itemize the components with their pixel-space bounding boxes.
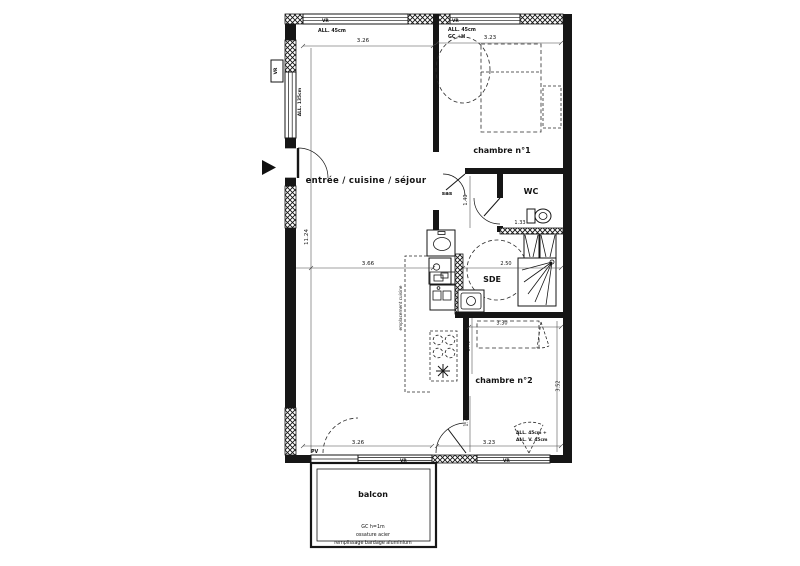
wall-bedroom2-west [463,318,469,420]
hob-icon [433,335,443,345]
wc-door-opening [496,198,504,226]
wall-hatch [285,14,303,24]
turning-circle-bedroom1 [436,37,490,103]
window-bottom-right [477,455,550,463]
hob-icon [433,348,443,358]
balcony-note-2: ossature acier [356,532,390,538]
wall-spine-lower [433,210,439,230]
room-label-balcony: balcon [358,490,388,499]
tag-all-bottom-1: ALL. 45cm + [516,430,547,436]
window-left [285,72,296,138]
room-label-sas: sas [442,191,453,197]
dim-bottom-left: 3.26 [352,440,365,446]
hand-basin-icon [429,258,451,284]
tag-all-top-right-2: GC +H [448,34,465,40]
dim-top-right: 3.23 [484,35,497,41]
tag-all-top-left: ALL. 45cm [318,28,346,34]
bed-outline [481,44,541,132]
nightstand-outline [543,86,561,128]
tag-vr-bottom-center: VR [400,458,407,464]
tag-vr-bottom-right: VR [503,458,510,464]
toilet-icon [527,209,535,223]
balcony-note-1: GC h=1m [361,524,385,530]
wall-bedroom2-north [455,312,563,318]
bedroom1-door-leaf [446,174,465,190]
windows [271,14,550,463]
kitchen-zone-label: emplacement cuisine [398,285,403,330]
tag-vr-top-right: VR [452,18,459,24]
window-bottom-center [358,455,432,463]
bedroom2-door-leaf [448,429,466,453]
bedroom2-door-arc [436,423,466,453]
fridge-icon [436,364,450,378]
wall-wc-south-hatch [500,228,563,234]
room-label-wc: WC [524,187,539,196]
entrance-door-arc [298,148,328,178]
tag-all-top-right-1: ALL. 45cm [448,27,476,33]
toilet-bowl [535,209,551,223]
dim-sde-width: 2.50 [500,261,511,267]
duct-icon [540,234,556,258]
dim-living-width: 3.66 [362,261,375,267]
balcony-note-3: remplissage bardage aluminium [334,540,412,546]
dim-wc-width: 1.33 [514,220,525,226]
dim-bedroom2-seg1: 1.49 [466,340,472,351]
room-label-sde: SDE [483,275,501,284]
floor-plan-svg: entrée / cuisine / séjour chambre n°1 WC… [0,0,800,566]
room-label-living: entrée / cuisine / séjour [306,175,427,186]
window-top-right [450,14,520,24]
dim-bedroom2-width: 3.30 [496,321,507,327]
tag-all-bottom-2: ALL. V. 45cm [516,437,548,443]
wall-hatch [408,14,450,24]
wall-hatch [285,186,296,228]
wall-hatch [285,40,296,72]
window-top-left [303,14,408,24]
dim-sas-height: 1.40 [463,194,469,205]
wall-bedroom1-south [465,168,563,174]
entrance-opening [284,148,297,178]
dim-left-height: 11.24 [304,229,310,245]
tag-vr-left: VR [273,67,279,74]
wall-hatch [432,455,477,463]
balcony-door-arc [323,418,358,453]
hob-icon [445,348,455,358]
dim-bottom-right: 3.23 [483,440,496,446]
duct-icon [524,234,539,258]
hob-icon [445,335,455,345]
wall-hatch [520,14,563,24]
tag-vr-top-left: VR [322,18,329,24]
room-label-bedroom2: chambre n°2 [475,376,532,385]
tag-all-left: ALL. 135cm [297,87,303,116]
doors [262,148,549,453]
dim-bedroom2-height: 3.52 [556,380,562,391]
wall-right [563,14,572,463]
wall-hatch [285,408,296,455]
kitchen-zone-outline [405,256,430,392]
entrance-arrow-icon [262,160,276,175]
closet-outline [477,321,539,348]
dim-bedroom2-seg2: 1.73 [464,415,470,426]
room-label-bedroom1: chambre n°1 [473,146,531,155]
fixtures [405,37,561,392]
floor-plan-page: entrée / cuisine / séjour chambre n°1 WC… [0,0,800,566]
tag-pv-bottom: PV [311,449,319,455]
dim-top-left: 3.26 [357,38,370,44]
